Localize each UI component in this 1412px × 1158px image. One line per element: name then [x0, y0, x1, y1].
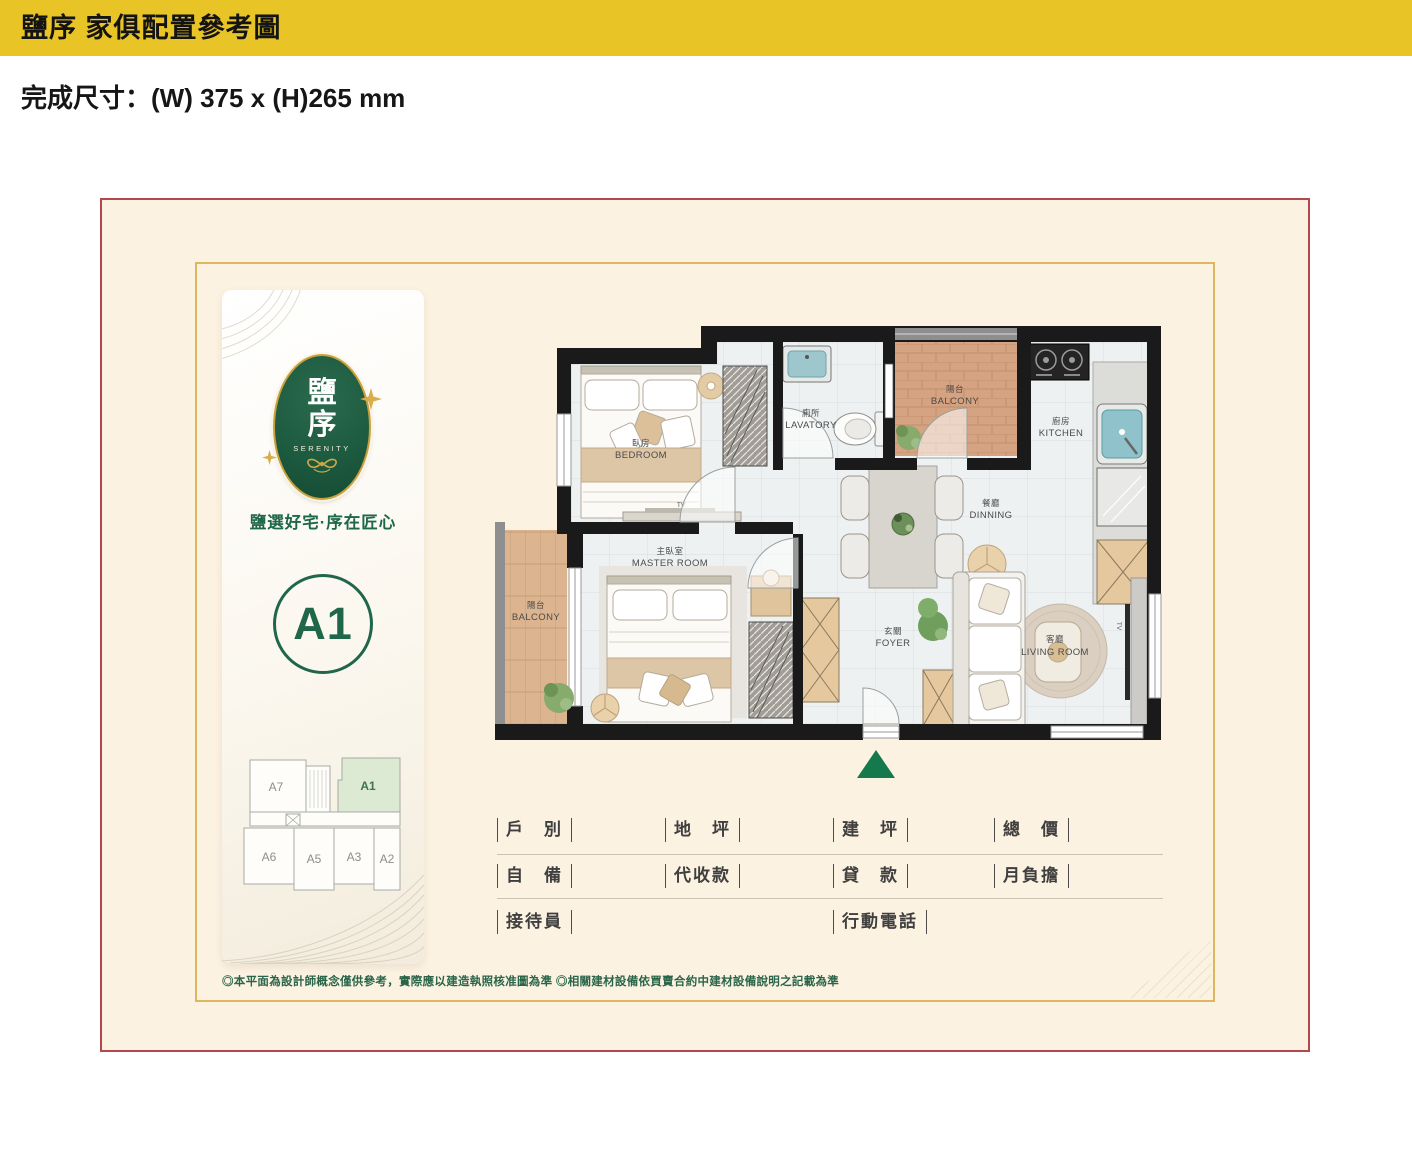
corner-hatch-decor [1125, 936, 1211, 998]
sofa [953, 572, 1025, 730]
master-wardrobe [749, 622, 793, 718]
room-label-living-zh: 客廳 [1046, 634, 1064, 644]
unit-badge: A1 [273, 574, 373, 674]
room-label-master-zh: 主臥室 [656, 546, 683, 556]
logo-char-2: 序 [307, 409, 336, 441]
floorplate-unit-label: A3 [347, 850, 362, 864]
room-label-master-en: MASTER ROOM [632, 558, 708, 569]
room-label-foyer-en: FOYER [876, 638, 911, 649]
round-side-table [591, 694, 619, 722]
form-row-1: 戶 別 地 坪 建 坪 總 價 [497, 818, 1163, 844]
unit-floorplate: A7 A1 A6 A5 A3 A2 [242, 750, 404, 900]
master-bed [607, 576, 731, 722]
toilet [834, 412, 887, 446]
floorplate-unit-label: A2 [380, 852, 395, 866]
brand-logo: 鹽 序 SERENITY [273, 354, 371, 500]
room-label-kitchen-zh: 廚房 [1052, 416, 1070, 426]
form-field-unit: 戶 別 [497, 818, 572, 842]
print-spec-line: 完成尺寸：(W) 375 x (H)265 mm [21, 78, 405, 115]
tv-label: TV [1115, 622, 1122, 631]
disclaimer-text: ◎本平面為設計師概念僅供參考，實際應以建造執照核准圖為準 ◎相關建材設備依買賣合… [222, 973, 942, 989]
shoe-cabinet [923, 670, 955, 726]
floorplate-unit-label: A5 [307, 852, 322, 866]
header-bar: 鹽序 家俱配置參考圖 [0, 0, 1412, 56]
floor-plan-area: TV [495, 326, 1163, 786]
room-label-lavatory-en: LAVATORY [785, 420, 837, 431]
brand-ornament-icon [303, 453, 341, 477]
plant [544, 683, 574, 713]
sparkle-icon [360, 388, 382, 410]
fridge [1097, 468, 1149, 526]
foyer-wardrobe [801, 598, 839, 702]
entrance-arrow-icon [857, 750, 895, 778]
form-field-monthly: 月負擔 [994, 864, 1069, 888]
room-label-kitchen-en: KITCHEN [1039, 428, 1084, 439]
sparkle-icon [262, 450, 277, 465]
room-label-lavatory-zh: 廁所 [802, 408, 820, 418]
room-label-dining-en: DINNING [970, 510, 1013, 521]
form-divider [497, 898, 1163, 899]
room-label-dining-zh: 餐廳 [982, 498, 1000, 508]
room-label-bedroom-zh: 臥房 [632, 438, 650, 448]
page-title: 鹽序 家俱配置參考圖 [21, 0, 282, 56]
kitchen-sink [1097, 404, 1147, 464]
unit-badge-label: A1 [293, 598, 353, 650]
floorplate-corridor [250, 812, 400, 826]
form-field-mobile: 行動電話 [833, 910, 927, 934]
lavatory-sink [783, 346, 831, 382]
form-field-collection: 代收款 [665, 864, 740, 888]
floorplate-unit-label: A1 [360, 779, 376, 793]
logo-char-1: 鹽 [307, 377, 336, 409]
form-divider [497, 854, 1163, 855]
logo-wordmark: SERENITY [293, 444, 351, 453]
room-label-balcony-top-zh: 陽台 [946, 384, 964, 394]
brand-tagline: 鹽選好宅·序在匠心 [222, 509, 424, 533]
room-label-balcony-left-zh: 陽台 [527, 600, 545, 610]
room-label-foyer-zh: 玄關 [884, 626, 902, 636]
form-row-2: 自 備 代收款 貸 款 月負擔 [497, 864, 1163, 890]
floorplate-unit-label: A6 [262, 850, 277, 864]
room-label-bedroom-en: BEDROOM [615, 450, 667, 461]
room-label-balcony-top-en: BALCONY [931, 396, 979, 407]
page: 鹽序 家俱配置參考圖 完成尺寸：(W) 375 x (H)265 mm [0, 0, 1412, 1158]
floor-plan: TV [495, 326, 1163, 781]
form-row-3: 接待員 行動電話 [497, 910, 1163, 936]
form-field-total-price: 總 價 [994, 818, 1069, 842]
stove [1029, 344, 1089, 380]
form-field-loan: 貸 款 [833, 864, 908, 888]
balcony-outer-wall [495, 522, 505, 724]
room-label-balcony-left-en: BALCONY [512, 612, 560, 623]
floorplate-unit-label: A7 [269, 780, 284, 794]
room-label-living-en: LIVING ROOM [1021, 647, 1089, 658]
form-field-floor-area: 建 坪 [833, 818, 908, 842]
brand-card: 鹽 序 SERENITY 鹽選好宅·序在匠心 A1 [222, 290, 424, 964]
form-field-land-area: 地 坪 [665, 818, 740, 842]
form-field-receptionist: 接待員 [497, 910, 572, 934]
form-field-down-payment: 自 備 [497, 864, 572, 888]
